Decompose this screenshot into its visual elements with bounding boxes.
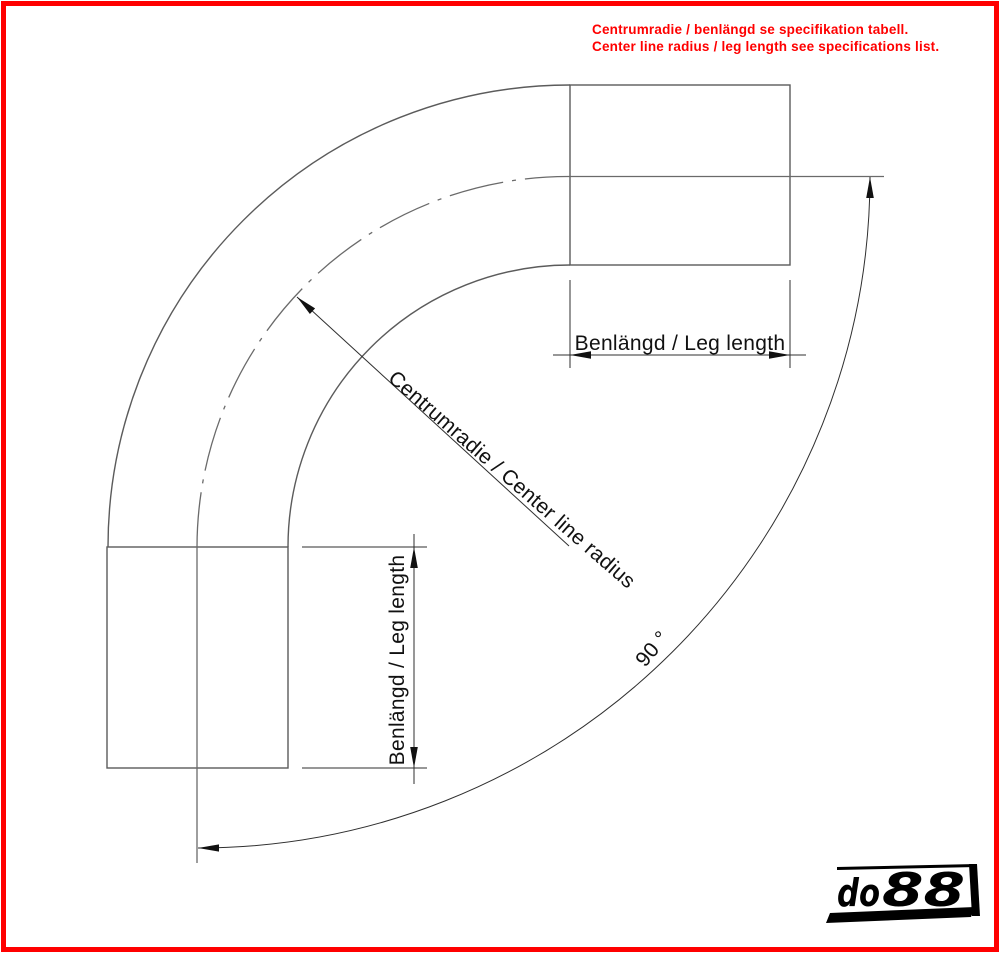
arrow-up xyxy=(410,547,418,568)
drawing-canvas: Benlängd / Leg length Benlängd / Leg len… xyxy=(0,0,1000,953)
spec-notice: Centrumradie / benlängd se specifikation… xyxy=(592,21,939,55)
logo-digits: 88 xyxy=(882,863,965,917)
angle-label: 90 ° xyxy=(631,627,674,672)
dimension-leg-left: Benlängd / Leg length xyxy=(302,534,427,784)
leg-top-right xyxy=(570,85,790,265)
leg-length-top-label: Benlängd / Leg length xyxy=(575,332,786,355)
pipe-bend-drawing: Benlängd / Leg length Benlängd / Leg len… xyxy=(0,0,1000,953)
spec-notice-swedish: Centrumradie / benlängd se specifikation… xyxy=(592,21,939,38)
arrow-arc-south xyxy=(198,844,219,851)
dimension-leg-top: Benlängd / Leg length xyxy=(553,280,806,368)
do88-logo: do 88 xyxy=(826,856,988,928)
leg-length-left-label: Benlängd / Leg length xyxy=(386,555,409,766)
arrow-down xyxy=(410,747,418,768)
arrow-arc-east xyxy=(866,177,874,198)
logo-prefix: do xyxy=(837,871,880,915)
center-radius-label: Centrumradie / Center line radius xyxy=(384,366,640,593)
spec-notice-english: Center line radius / leg length see spec… xyxy=(592,38,939,55)
